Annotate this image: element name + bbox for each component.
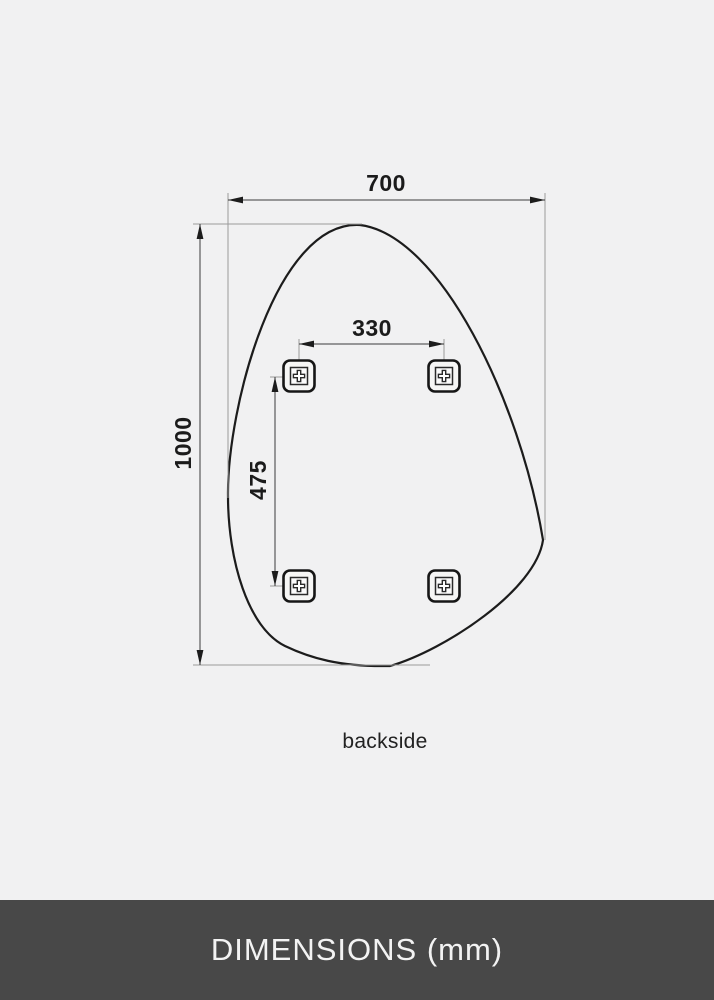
screw-mount-bracket-icon-top-left	[284, 361, 315, 392]
arrow-down-icon	[272, 571, 279, 586]
dimension-overall-height: 1000	[170, 224, 203, 665]
screw-mount-bracket-icon-bottom-right	[429, 571, 460, 602]
dimension-bracket-spacing-horizontal: 330	[299, 315, 444, 347]
dimension-bracket-spacing-vertical: 475	[245, 377, 278, 586]
dimension-width-value: 700	[366, 170, 406, 196]
dimension-bracket-horizontal-value: 330	[352, 315, 392, 341]
footer-bar: DIMENSIONS (mm)	[0, 900, 714, 1000]
arrow-down-icon	[197, 650, 204, 665]
arrow-up-icon	[272, 377, 279, 392]
arrow-up-icon	[197, 224, 204, 239]
dimension-overall-width: 700	[228, 170, 545, 203]
dimension-bracket-vertical-value: 475	[245, 460, 271, 500]
arrow-right-icon	[429, 341, 444, 348]
dimension-diagram-page: 700 1000 330 475	[0, 0, 714, 1000]
mount-brackets	[284, 361, 460, 602]
caption-backside: backside	[342, 730, 427, 753]
arrow-left-icon	[299, 341, 314, 348]
arrow-right-icon	[530, 197, 545, 204]
footer-title: DIMENSIONS (mm)	[211, 932, 503, 968]
screw-mount-bracket-icon-bottom-left	[284, 571, 315, 602]
screw-mount-bracket-icon-top-right	[429, 361, 460, 392]
arrow-left-icon	[228, 197, 243, 204]
technical-drawing: 700 1000 330 475	[0, 0, 714, 900]
dimension-height-value: 1000	[170, 416, 196, 469]
